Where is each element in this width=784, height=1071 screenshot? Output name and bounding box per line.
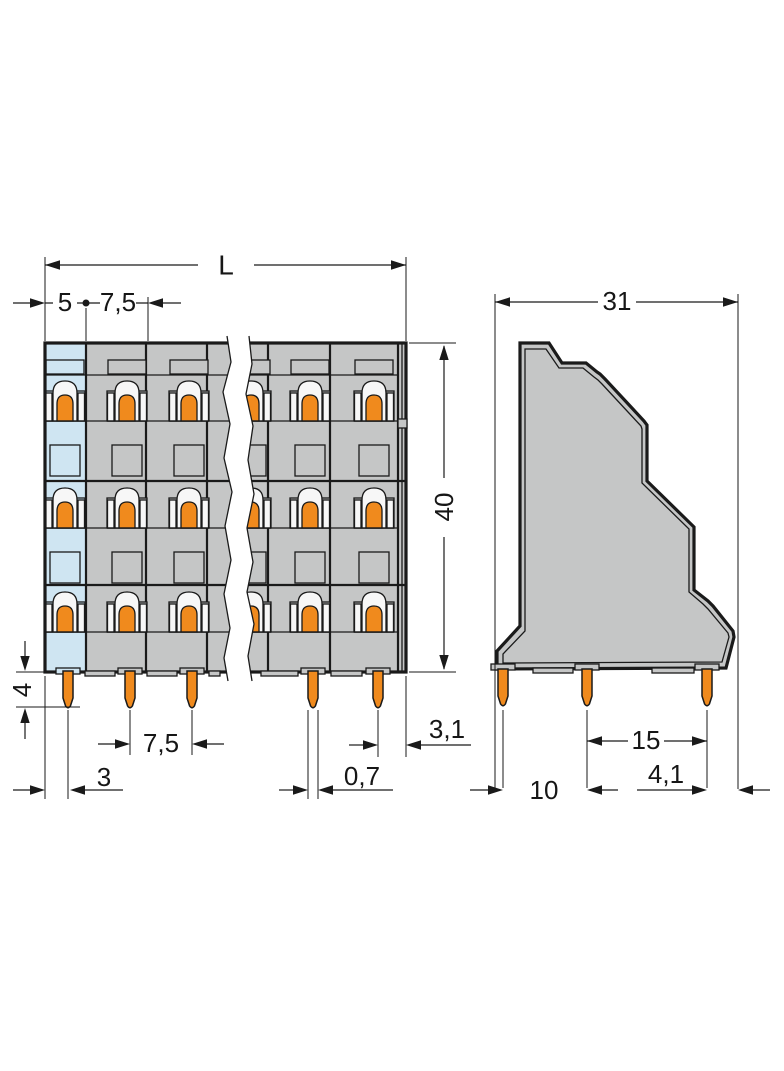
dim-overall-length-label: L bbox=[218, 250, 234, 281]
dim-pin-pitch-label: 7,5 bbox=[143, 728, 179, 758]
dim-pin-pitch: 7,5 bbox=[98, 728, 224, 758]
dim-pin-row-span: 15 bbox=[587, 725, 707, 755]
dim-pin-row-span-label: 15 bbox=[632, 725, 661, 755]
dim-pin-width: 0,7 bbox=[279, 761, 393, 795]
dim-end-section-label: 5 bbox=[58, 287, 72, 317]
solder-pin bbox=[63, 671, 73, 708]
solder-pin bbox=[702, 669, 712, 706]
dim-end-section-and-pitch: 5 7,5 bbox=[13, 287, 181, 317]
dim-last-pin-offset: 3,1 bbox=[349, 714, 471, 750]
dim-pin-width-label: 0,7 bbox=[344, 761, 380, 791]
dim-pin-row-edge-offset: 4,1 bbox=[637, 759, 770, 795]
side-profile bbox=[497, 343, 734, 669]
technical-drawing: L 5 7,5 40 4 7,5 bbox=[0, 0, 784, 1066]
solder-pin bbox=[308, 671, 318, 708]
dim-first-pin-offset-label: 3 bbox=[97, 762, 111, 792]
dim-height-label: 40 bbox=[429, 493, 459, 522]
dim-overall-length: L bbox=[45, 250, 406, 281]
dim-pin-row-edge-offset-label: 4,1 bbox=[648, 759, 684, 789]
latch-notch bbox=[398, 419, 407, 428]
solder-pin bbox=[125, 671, 135, 708]
dim-depth: 31 bbox=[495, 286, 738, 316]
dim-pin-row-first-offset-label: 10 bbox=[530, 775, 559, 805]
side-view bbox=[491, 343, 734, 706]
solder-pin bbox=[582, 669, 592, 706]
solder-pins-side bbox=[498, 669, 712, 706]
solder-pin bbox=[187, 671, 197, 708]
dim-depth-label: 31 bbox=[603, 286, 632, 316]
dim-pin-length: 4 bbox=[7, 641, 37, 739]
solder-pin bbox=[373, 671, 383, 708]
drawing-canvas: L 5 7,5 40 4 7,5 bbox=[0, 0, 784, 1066]
dim-height: 40 bbox=[429, 345, 459, 670]
solder-pin bbox=[498, 669, 508, 706]
dim-last-pin-offset-label: 3,1 bbox=[429, 714, 465, 744]
front-view bbox=[45, 336, 407, 708]
dim-pin-row-first-offset: 10 bbox=[470, 775, 618, 805]
dim-pole-pitch-label: 7,5 bbox=[100, 287, 136, 317]
dim-pin-length-label: 4 bbox=[7, 683, 37, 697]
